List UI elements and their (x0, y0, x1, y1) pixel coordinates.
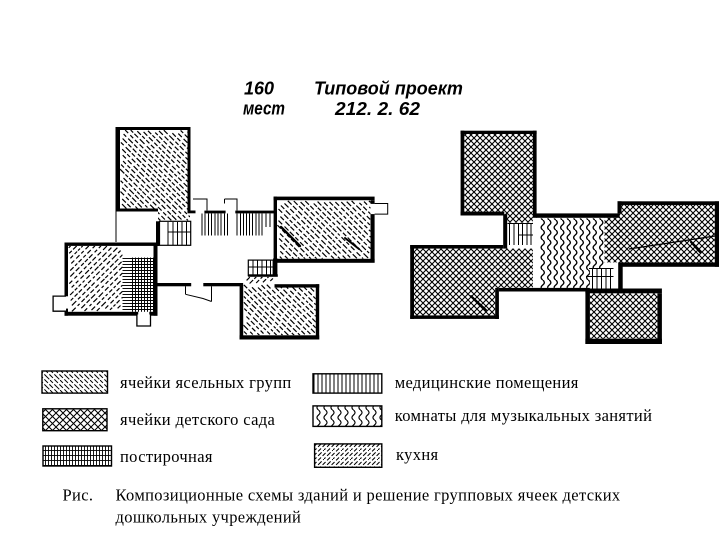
svg-text:Типовой проект: Типовой проект (314, 79, 463, 99)
svg-text:Рис.: Рис. (63, 486, 94, 505)
svg-text:ячейки ясельных групп: ячейки ясельных групп (120, 373, 292, 392)
svg-text:кухня: кухня (396, 445, 439, 464)
svg-text:ячейки детского сада: ячейки детского сада (120, 410, 276, 429)
svg-text:медицинские помещения: медицинские помещения (395, 373, 579, 392)
svg-text:дошкольных учреждений: дошкольных учреждений (116, 508, 302, 527)
svg-text:мест: мест (243, 99, 285, 119)
svg-text:212. 2. 62: 212. 2. 62 (334, 99, 420, 119)
svg-text:постирочная: постирочная (120, 447, 213, 466)
svg-text:Композиционные схемы зданий и: Композиционные схемы зданий и решение гр… (116, 486, 621, 505)
svg-text:160: 160 (244, 79, 274, 99)
svg-text:комнаты для музыкальных заняти: комнаты для музыкальных занятий (395, 406, 653, 425)
